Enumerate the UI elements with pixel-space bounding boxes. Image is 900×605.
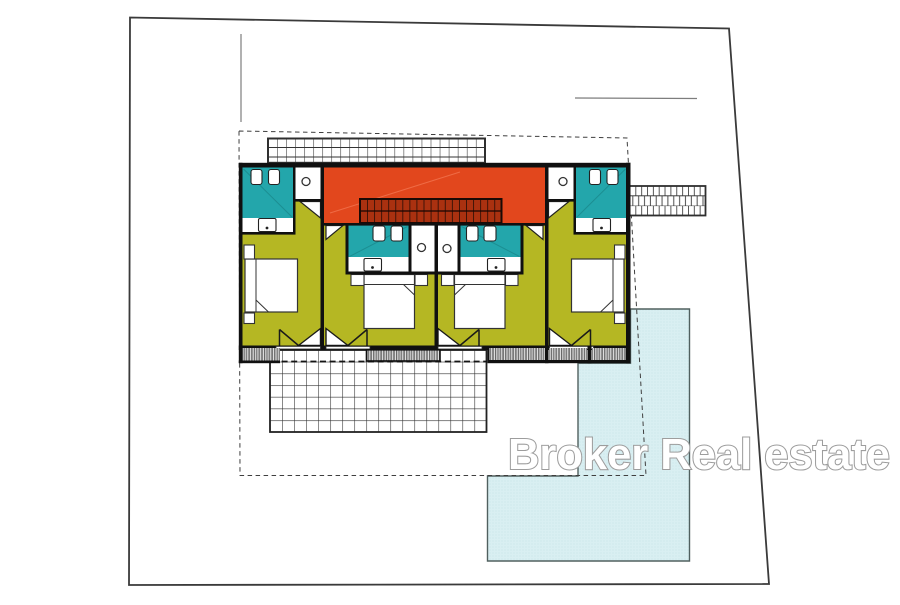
svg-text:Broker Real estate: Broker Real estate [508, 430, 890, 479]
